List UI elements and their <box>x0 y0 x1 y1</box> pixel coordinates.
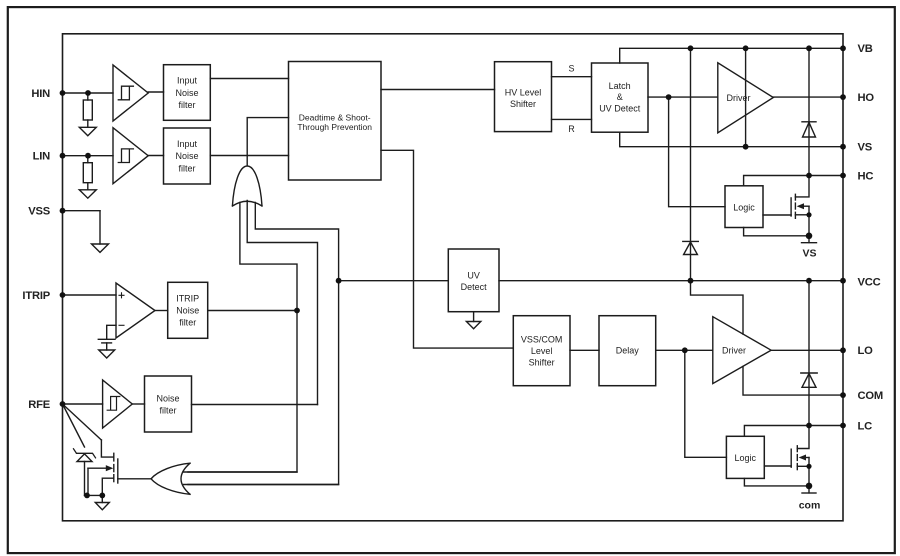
svg-text:Driver: Driver <box>727 93 751 103</box>
svg-text:InputNoisefilter: InputNoisefilter <box>175 76 198 110</box>
svg-text:R: R <box>568 124 575 134</box>
svg-text:COM: COM <box>858 390 884 402</box>
svg-text:Logic: Logic <box>733 203 755 213</box>
svg-text:Logic: Logic <box>735 453 757 463</box>
svg-text:ITRIPNoisefilter: ITRIPNoisefilter <box>176 293 199 327</box>
svg-text:VB: VB <box>858 43 873 55</box>
svg-text:InputNoisefilter: InputNoisefilter <box>175 139 198 173</box>
svg-text:LC: LC <box>858 420 873 432</box>
svg-text:HC: HC <box>858 170 874 182</box>
svg-text:LO: LO <box>858 345 874 357</box>
svg-text:HO: HO <box>858 92 875 104</box>
svg-text:com: com <box>799 500 821 512</box>
svg-text:RFE: RFE <box>28 399 51 411</box>
svg-text:UVDetect: UVDetect <box>461 271 488 293</box>
svg-text:VS: VS <box>858 142 873 154</box>
svg-text:VCC: VCC <box>858 277 881 289</box>
svg-text:S: S <box>568 64 574 74</box>
svg-text:HV LevelShifter: HV LevelShifter <box>505 88 542 109</box>
svg-text:ITRIP: ITRIP <box>22 290 50 302</box>
svg-text:Driver: Driver <box>722 346 746 356</box>
svg-text:Deadtime & Shoot-Through Preve: Deadtime & Shoot-Through Prevention <box>297 113 372 132</box>
svg-text:VS: VS <box>802 248 816 260</box>
svg-text:VSS: VSS <box>28 206 51 218</box>
svg-text:LIN: LIN <box>33 151 51 163</box>
svg-text:Delay: Delay <box>616 346 640 356</box>
svg-text:Latch&UV Detect: Latch&UV Detect <box>599 81 641 114</box>
svg-text:HIN: HIN <box>31 88 50 100</box>
svg-text:Noisefilter: Noisefilter <box>156 394 179 416</box>
svg-text:VSS/COMLevelShifter: VSS/COMLevelShifter <box>521 334 563 367</box>
